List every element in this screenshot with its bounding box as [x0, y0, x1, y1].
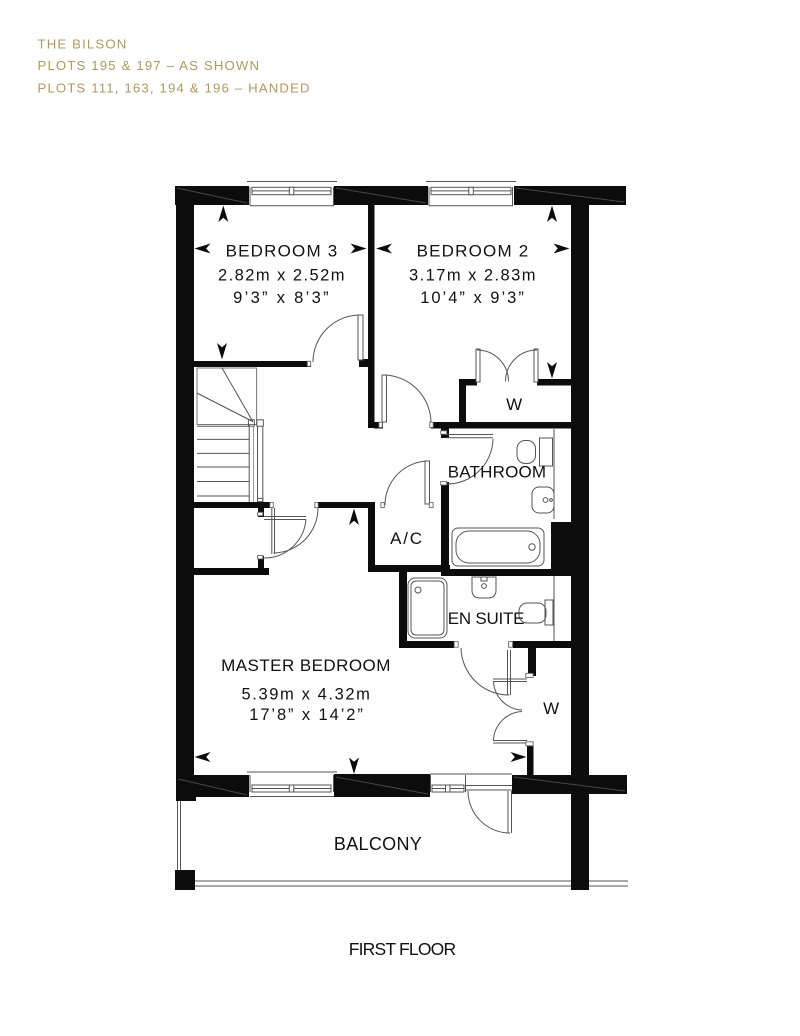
svg-text:17’8” x 14’2”: 17’8” x 14’2” — [249, 706, 365, 724]
svg-text:A/C: A/C — [390, 529, 424, 548]
svg-text:BALCONY: BALCONY — [334, 834, 422, 854]
svg-text:W: W — [543, 699, 561, 718]
svg-text:EN SUITE: EN SUITE — [448, 609, 524, 628]
svg-text:BEDROOM 2: BEDROOM 2 — [417, 242, 530, 261]
svg-text:MASTER BEDROOM: MASTER BEDROOM — [221, 656, 391, 675]
svg-text:BATHROOM: BATHROOM — [448, 463, 547, 482]
svg-text:W: W — [506, 395, 524, 414]
svg-text:5.39m x 4.32m: 5.39m x 4.32m — [242, 686, 372, 704]
svg-text:2.82m x 2.52m: 2.82m x 2.52m — [218, 267, 346, 285]
svg-text:10’4” x 9’3”: 10’4” x 9’3” — [420, 289, 526, 307]
svg-text:THE BILSON: THE BILSON — [38, 37, 128, 52]
svg-text:3.17m x 2.83m: 3.17m x 2.83m — [409, 267, 537, 285]
svg-text:PLOTS 195 & 197 – AS SHOWN: PLOTS 195 & 197 – AS SHOWN — [38, 58, 261, 73]
svg-text:FIRST FLOOR: FIRST FLOOR — [349, 939, 456, 959]
svg-text:PLOTS 111, 163, 194 & 196 – HA: PLOTS 111, 163, 194 & 196 – HANDED — [38, 80, 311, 95]
svg-text:BEDROOM 3: BEDROOM 3 — [226, 242, 339, 261]
svg-text:9’3” x 8’3”: 9’3” x 8’3” — [233, 289, 331, 307]
